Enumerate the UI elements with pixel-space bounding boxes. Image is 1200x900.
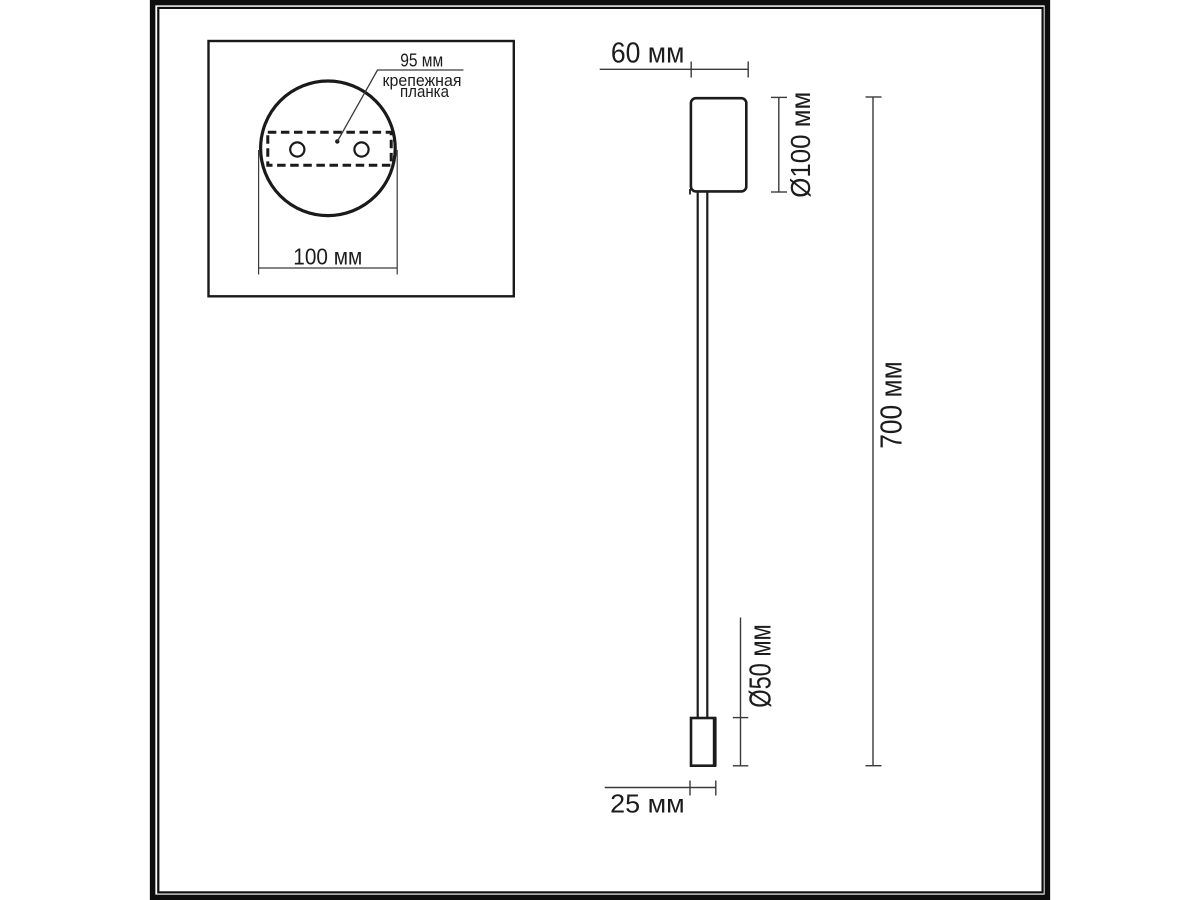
svg-text:100 мм: 100 мм [293, 244, 362, 270]
svg-text:планка: планка [400, 82, 449, 101]
svg-text:700 мм: 700 мм [873, 361, 908, 449]
svg-text:Ø50 мм: Ø50 мм [742, 624, 777, 708]
svg-text:60 мм: 60 мм [611, 38, 685, 70]
svg-text:Ø100 мм: Ø100 мм [785, 92, 816, 198]
svg-text:25 мм: 25 мм [610, 789, 685, 819]
svg-text:95 мм: 95 мм [400, 51, 443, 71]
